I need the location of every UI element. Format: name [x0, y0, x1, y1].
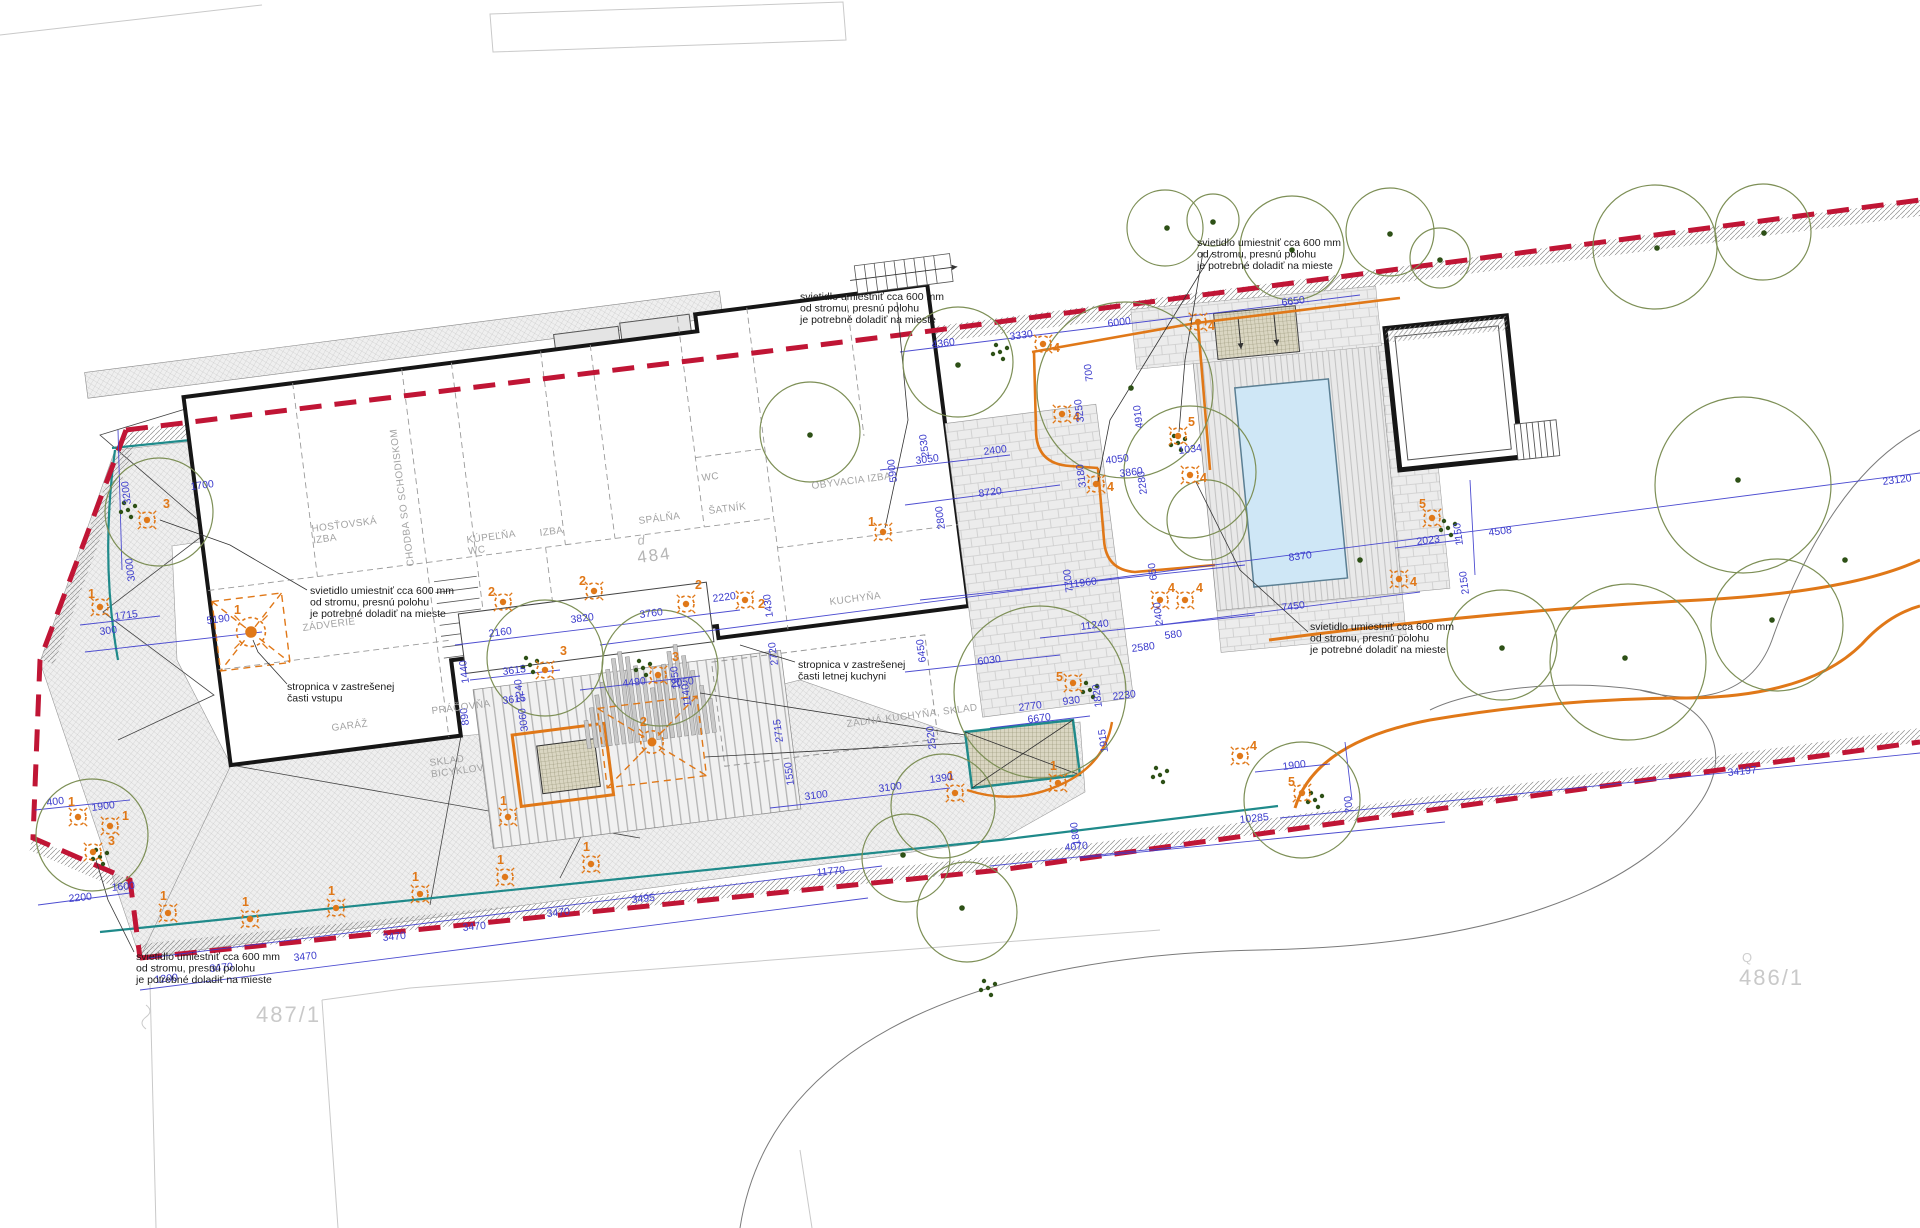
dimension-text: 3470	[382, 930, 407, 944]
parcel-label: Q	[1742, 950, 1752, 965]
light-count-label: 1	[497, 853, 504, 867]
dimension-text: 580	[1164, 628, 1183, 642]
shrub-dot	[986, 986, 990, 990]
light-count-label: 4	[1107, 480, 1114, 494]
tree-trunk-dot	[1357, 557, 1363, 563]
dimension-text: 4050	[1105, 452, 1130, 467]
parcel-label: 486/1	[1739, 965, 1804, 990]
dimension-text: 2720	[766, 641, 781, 666]
light-count-label: 4	[1053, 341, 1060, 355]
dimension-text: 2400	[1151, 601, 1166, 626]
dimension-text: 4508	[1488, 524, 1513, 539]
shrub-dot	[989, 993, 993, 997]
parcel-label: 487/1	[256, 1002, 321, 1027]
light-count-label: 1	[122, 809, 129, 823]
dimension-text: 3250	[1072, 398, 1087, 423]
dimension-text: 300	[99, 624, 118, 638]
shrub-dot	[129, 515, 133, 519]
shrub-dot	[637, 659, 641, 663]
light-count-label: 1	[160, 889, 167, 903]
tree-trunk-dot	[1499, 645, 1505, 651]
dimension-text: 1150	[1451, 522, 1466, 546]
dimension-text: 3470	[462, 920, 487, 934]
light-marker: 4	[1231, 739, 1257, 765]
tree-trunk-dot	[955, 362, 961, 368]
dimension-text: 2200	[68, 891, 93, 905]
shrub-dot	[1005, 346, 1009, 350]
light-count-label: 5	[1188, 415, 1195, 429]
light-count-label: 1	[68, 795, 75, 809]
dimension-text: 4910	[1131, 404, 1146, 429]
light-count-label: 1	[1050, 759, 1057, 773]
garden-building-stair	[1514, 420, 1560, 460]
dimension-text: 2150	[1457, 570, 1472, 595]
light-count-label: 1	[500, 794, 507, 808]
shrub-dot	[531, 670, 535, 674]
dimension-text: 930	[1062, 694, 1081, 708]
light-marker: 4	[1176, 581, 1203, 609]
dimension-text: 3330	[1009, 328, 1034, 343]
shrub-dot	[119, 510, 123, 514]
light-count-label: 1	[583, 840, 590, 854]
light-marker: 5	[1169, 415, 1195, 445]
shrub-dot	[126, 508, 130, 512]
light-count-label: 1	[412, 870, 419, 884]
light-count-label: 4	[1250, 739, 1257, 753]
tree-trunk-dot	[1761, 230, 1767, 236]
light-count-label: 4	[1200, 471, 1207, 485]
dimension-text: 1900	[1282, 758, 1307, 773]
tree-trunk-dot	[1128, 385, 1134, 391]
shrub-dot	[991, 352, 995, 356]
shrub-dot	[1151, 775, 1155, 779]
shrub-dot	[528, 663, 532, 667]
dimension-text: 2240	[512, 678, 527, 703]
annotation-note: stropnica v zastrešenejčasti letnej kuch…	[798, 659, 905, 683]
annotation-note: svietidlo umiestniť cca 600 mmod stromu,…	[135, 951, 280, 986]
light-count-label: 5	[1288, 775, 1295, 789]
shrub-dot	[524, 656, 528, 660]
dimension-text: 6000	[1107, 315, 1132, 330]
dimension-text: 400	[46, 795, 65, 809]
shrub-dot	[982, 979, 986, 983]
light-count-label: 5	[1419, 497, 1426, 511]
dimension-text: 700	[1082, 363, 1096, 382]
tree-trunk-dot	[1769, 617, 1775, 623]
shrub-dot	[994, 343, 998, 347]
shrub-dot	[634, 668, 638, 672]
dimension-text: 3615	[502, 663, 527, 678]
light-count-label: 2	[695, 578, 702, 592]
tree-trunk-dot	[1654, 245, 1660, 251]
dimension-text: 34197	[1727, 764, 1757, 779]
light-marker: 1	[68, 795, 87, 826]
tree-trunk-dot	[1622, 655, 1628, 661]
dimension-text: 3495	[631, 892, 656, 906]
shrub-dot	[1001, 357, 1005, 361]
east-patio-pavers	[945, 404, 1133, 717]
shrub-dot	[1316, 805, 1320, 809]
tree-trunk-dot	[1387, 231, 1393, 237]
shrub-dot	[979, 988, 983, 992]
light-count-label: 3	[163, 497, 170, 511]
shrub-dot	[1154, 766, 1158, 770]
site-plan-drawing: 113332222144444445555441111111111132 170…	[0, 0, 1920, 1228]
dimension-text: 1034	[1178, 442, 1203, 457]
light-count-label: 1	[868, 515, 875, 529]
tree-trunk-dot	[1164, 225, 1170, 231]
tree-trunk-dot	[1210, 219, 1216, 225]
dimension-text: 650	[1146, 562, 1160, 581]
tree-canopy-circle	[1447, 590, 1557, 700]
tree-trunk-dot	[900, 852, 906, 858]
tree-canopy-circle	[1655, 397, 1831, 573]
dimension-text: 1600	[111, 880, 136, 894]
shrub-dot	[1439, 528, 1443, 532]
light-count-label: 3	[672, 650, 679, 664]
tree-trunk-dot	[959, 905, 965, 911]
tree-trunk-dot	[1842, 557, 1848, 563]
light-count-label: 3	[108, 834, 115, 848]
tree-trunk-dot	[1735, 477, 1741, 483]
tree-trunk-dot	[1437, 257, 1443, 263]
shrub-dot	[993, 982, 997, 986]
annotation-note: svietidlo umiestniť cca 600 mmod stromu,…	[1196, 237, 1341, 272]
dimension-text: 3470	[546, 906, 571, 920]
shrub-dot	[1313, 798, 1317, 802]
shrub-dot	[641, 666, 645, 670]
light-count-label: 3	[560, 644, 567, 658]
annotation-note: svietidlo umiestniť cca 600 mmod stromu,…	[1309, 621, 1454, 656]
dimension-text: 23120	[1882, 472, 1913, 488]
shrub-dot	[101, 862, 105, 866]
shrub-dot	[1165, 769, 1169, 773]
dimension-text: 1800	[1068, 821, 1083, 846]
tree-canopy-circle	[917, 862, 1017, 962]
shrub-dot	[1158, 773, 1162, 777]
shrub-dot	[1084, 681, 1088, 685]
garden-building	[1385, 316, 1521, 470]
shrub-dot	[105, 851, 109, 855]
dimension-text: 700	[1342, 795, 1356, 814]
dimension-text: 6450	[914, 638, 929, 663]
dimension-text: 3470	[293, 950, 318, 964]
dimension-text: 2580	[1131, 640, 1156, 655]
shrub-dot	[648, 662, 652, 666]
shrub-dot	[1320, 794, 1324, 798]
light-count-label: 4	[1168, 581, 1175, 595]
light-count-label: 2	[579, 574, 586, 588]
light-count-label: 4	[1208, 319, 1215, 333]
light-count-label: 1	[328, 884, 335, 898]
shrub-dot	[998, 350, 1002, 354]
room-label: WC	[701, 471, 720, 484]
shrub-dot	[1442, 519, 1446, 523]
dimension-text: 2230	[1112, 688, 1137, 703]
light-count-label: 4	[1410, 575, 1417, 589]
light-count-label: 5	[1056, 670, 1063, 684]
pool-tech-pad	[1214, 306, 1300, 360]
light-count-label: 1	[234, 603, 241, 617]
light-count-label: 1	[242, 895, 249, 909]
light-count-label: 2	[488, 585, 495, 599]
light-count-label: 4	[1196, 581, 1203, 595]
shrub-dot	[1161, 780, 1165, 784]
light-count-label: 2	[640, 715, 647, 729]
dimension-text: 4360	[931, 336, 956, 351]
light-count-label: 1	[88, 587, 95, 601]
site-plan-page: 113332222144444445555441111111111132 170…	[0, 0, 1920, 1228]
shrub-dot	[1446, 526, 1450, 530]
tree-trunk-dot	[807, 432, 813, 438]
